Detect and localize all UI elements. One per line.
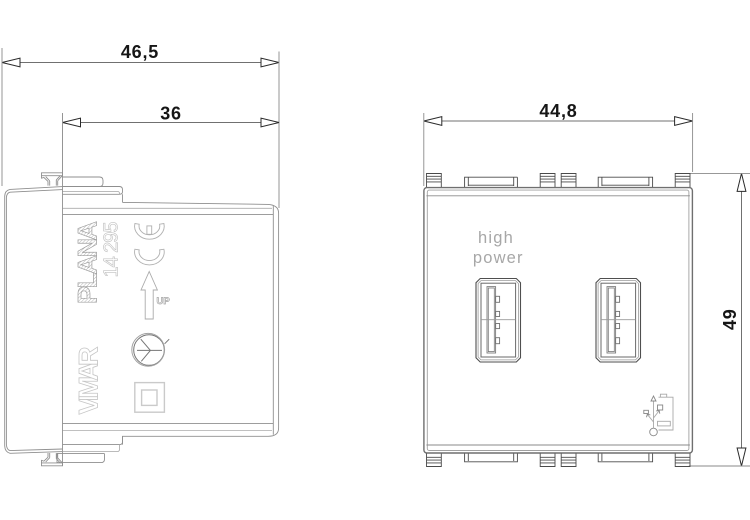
svg-text:PLANA: PLANA (73, 221, 103, 304)
svg-text:36: 36 (160, 104, 182, 124)
svg-text:14 295: 14 295 (101, 222, 123, 278)
svg-text:49: 49 (720, 308, 740, 330)
svg-text:power: power (473, 249, 524, 267)
svg-text:UP: UP (157, 296, 171, 307)
svg-text:high: high (478, 229, 514, 247)
svg-text:VIMAR: VIMAR (74, 347, 104, 415)
svg-text:46,5: 46,5 (121, 42, 159, 62)
svg-text:44,8: 44,8 (539, 101, 577, 121)
